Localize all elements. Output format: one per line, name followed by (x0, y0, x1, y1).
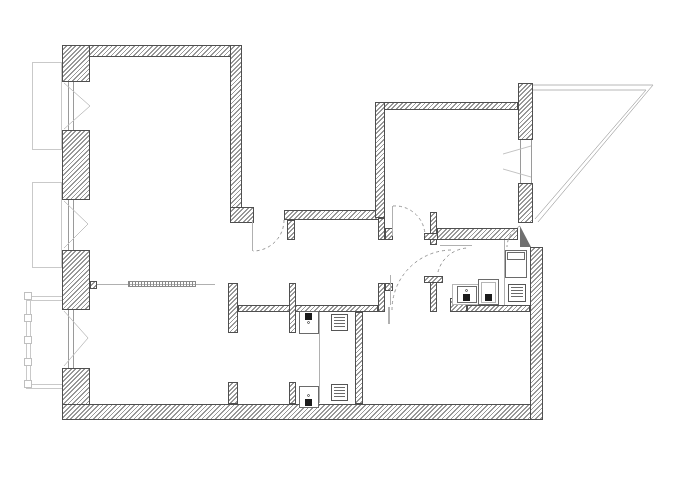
living-door-leaf (252, 220, 253, 251)
triangular-balcony-outer (533, 85, 653, 222)
bay-line-5 (26, 388, 62, 389)
floor-plan (0, 0, 700, 500)
window-left-3 (68, 310, 74, 368)
corridor-line (390, 275, 391, 305)
hall-top-wall (284, 210, 385, 220)
right-wall (530, 247, 543, 420)
plan-symbols-layer (0, 0, 700, 500)
bath-sink-2-drain (307, 394, 310, 397)
left-pier-1 (62, 45, 90, 82)
wardrobe-bar (128, 281, 196, 287)
window-left-1 (68, 82, 74, 130)
kitchen-cabinet-shelf (507, 252, 525, 260)
vestibule-stub (430, 212, 437, 245)
bedroom-left-wall-lower (378, 218, 385, 240)
right-pier-2 (518, 183, 533, 223)
bedroom-door-arc (393, 206, 425, 236)
closet-wall-upper (228, 283, 238, 333)
bedroom-bottom-wall (437, 228, 518, 240)
stove-grate (508, 284, 526, 302)
stove-grate-lines (511, 287, 523, 299)
bath-wall-upper (289, 283, 296, 333)
bay-mullion-3 (24, 358, 32, 366)
kitchen-sink-drain (465, 289, 468, 292)
left-pier-2 (62, 130, 90, 200)
floor-grate-2 (331, 384, 348, 401)
bath-sink-2-tap (305, 399, 312, 406)
left-pier-3-tab (90, 281, 97, 289)
room2-door-arc (392, 250, 452, 310)
kitchen-door-arc (438, 248, 468, 272)
vestibule-sill-line (440, 245, 472, 246)
kitchen-sink-tap (463, 294, 470, 301)
kitchen-fixture-tap (485, 294, 492, 301)
bath-right-wall (355, 312, 363, 404)
ext-window-box-2 (32, 182, 62, 268)
bath-sink-1-drain (307, 321, 310, 324)
bath-sink-1-tap (305, 313, 312, 320)
bay-line-3 (26, 300, 62, 301)
bay-mullion-1 (24, 314, 32, 322)
bath-wall-lower (289, 382, 296, 404)
floor-grate-1-lines (334, 317, 345, 328)
ext-window-box-1 (32, 62, 62, 150)
entrance-door-leaf (520, 226, 531, 247)
bay-mullion-0 (24, 292, 32, 300)
room1-right-wall (230, 45, 242, 209)
triangular-balcony-inner (533, 90, 646, 219)
bedroom-top-wall (375, 102, 518, 110)
mid-stub (378, 283, 385, 312)
hall-top-stub (287, 220, 295, 240)
kitchen-bottom-wall (467, 305, 530, 312)
left-pier-3 (62, 250, 90, 310)
floor-grate-1 (331, 314, 348, 331)
bedroom-left-wall (375, 102, 385, 218)
living-door-arc (253, 220, 284, 251)
bath-divider-line (319, 312, 320, 403)
window-bedroom (520, 140, 532, 183)
floor-grate-2-lines (334, 387, 345, 398)
kitchen-divider-line (504, 240, 505, 305)
closet-wall-lower (228, 382, 238, 404)
bay-mullion-4 (24, 380, 32, 388)
bay-mullion-2 (24, 336, 32, 344)
room1-right-foot (230, 207, 254, 223)
right-pier-1 (518, 83, 533, 140)
bedroom-door-leaf (392, 206, 393, 236)
mid-stub-foot (385, 283, 393, 291)
room2-door-leaf (388, 307, 390, 324)
window-left-2 (68, 200, 74, 250)
kitchen-left-tab (424, 276, 443, 283)
